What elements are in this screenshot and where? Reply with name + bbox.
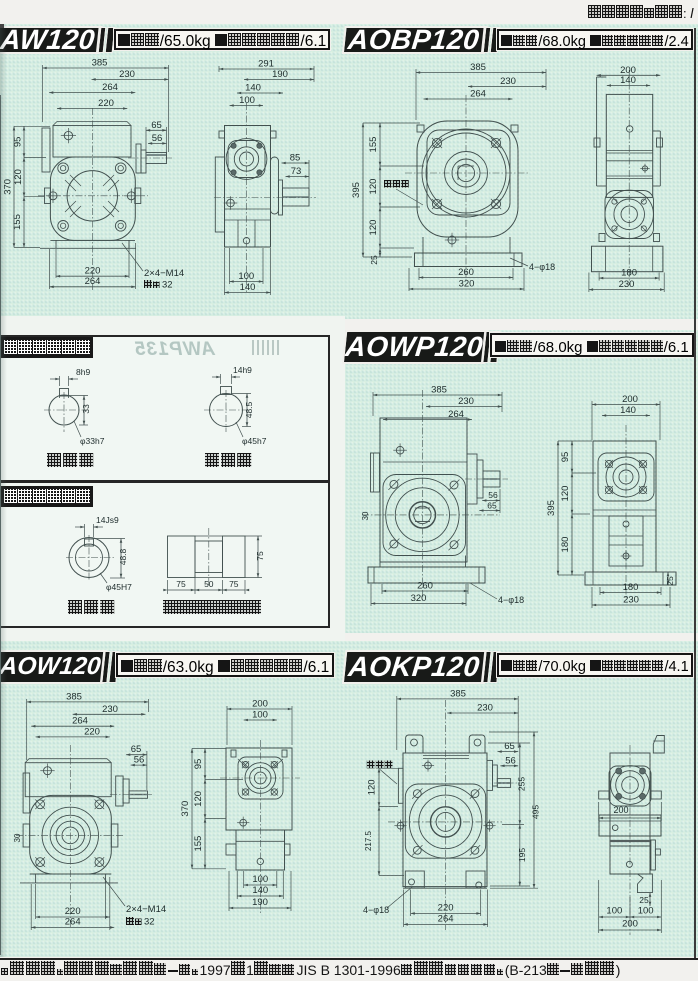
svg-text:85: 85: [290, 153, 301, 164]
svg-text:50: 50: [204, 579, 214, 589]
svg-text:120: 120: [560, 486, 571, 502]
svg-text:100: 100: [239, 95, 255, 106]
svg-text:395: 395: [351, 182, 362, 198]
svg-text:56: 56: [134, 755, 145, 766]
svg-text:140: 140: [252, 885, 268, 896]
svg-text:100: 100: [252, 710, 268, 721]
svg-text:14Js9: 14Js9: [96, 515, 119, 525]
svg-text:200: 200: [622, 919, 638, 930]
svg-text:385: 385: [92, 58, 108, 69]
svg-text:140: 140: [240, 282, 256, 293]
svg-text:155: 155: [368, 137, 379, 153]
svg-text:4−φ18: 4−φ18: [363, 905, 389, 915]
svg-text:230: 230: [500, 76, 516, 87]
svg-text:120: 120: [368, 179, 379, 195]
svg-text:100: 100: [606, 906, 622, 917]
svg-text:395: 395: [546, 500, 557, 516]
svg-text:264: 264: [448, 409, 464, 420]
svg-text:180: 180: [621, 268, 637, 279]
svg-text:230: 230: [623, 595, 639, 606]
svg-text:25: 25: [665, 576, 675, 586]
svg-text:120: 120: [367, 779, 378, 795]
svg-text:230: 230: [619, 279, 635, 290]
svg-text:260: 260: [458, 267, 474, 278]
svg-text:75: 75: [176, 579, 186, 589]
svg-text:φ45h7: φ45h7: [242, 436, 267, 446]
svg-text:217.5: 217.5: [364, 830, 373, 851]
svg-text:264: 264: [470, 89, 486, 100]
svg-text:14h9: 14h9: [233, 365, 252, 375]
svg-text:φ33h7: φ33h7: [80, 436, 105, 446]
svg-text:320: 320: [459, 279, 475, 290]
svg-text:65: 65: [151, 120, 162, 131]
svg-text:56: 56: [152, 133, 163, 144]
svg-text:4−φ18: 4−φ18: [529, 262, 555, 272]
svg-text:30: 30: [13, 833, 22, 842]
svg-text:73: 73: [291, 166, 302, 177]
svg-text:65: 65: [131, 744, 142, 755]
svg-text:140: 140: [245, 83, 261, 94]
svg-text:65: 65: [487, 501, 497, 511]
svg-text:32: 32: [162, 280, 173, 291]
svg-text:190: 190: [252, 897, 268, 908]
svg-text:220: 220: [438, 903, 454, 914]
svg-text:φ45H7: φ45H7: [106, 582, 132, 592]
svg-text:100: 100: [638, 906, 654, 917]
svg-text:230: 230: [458, 396, 474, 407]
svg-text:95: 95: [560, 452, 571, 463]
svg-text:140: 140: [620, 405, 636, 416]
svg-text:385: 385: [431, 385, 447, 396]
svg-text:200: 200: [252, 699, 268, 710]
svg-text:56: 56: [488, 490, 498, 500]
svg-text:495: 495: [531, 805, 541, 819]
svg-text:230: 230: [102, 704, 118, 715]
svg-text:56: 56: [505, 755, 516, 766]
svg-text:230: 230: [119, 69, 135, 80]
svg-text:100: 100: [252, 874, 268, 885]
svg-text:180: 180: [623, 582, 639, 593]
svg-text:385: 385: [450, 688, 466, 699]
svg-text:264: 264: [438, 914, 454, 925]
svg-text:32: 32: [144, 917, 155, 928]
svg-text:155: 155: [193, 836, 204, 852]
svg-text:4−φ18: 4−φ18: [498, 595, 524, 605]
svg-text:260: 260: [417, 581, 433, 592]
svg-text:230: 230: [477, 703, 493, 714]
svg-text:255: 255: [517, 777, 527, 791]
svg-text:75: 75: [255, 551, 265, 561]
svg-text:25: 25: [369, 255, 379, 265]
svg-text:95: 95: [193, 759, 204, 770]
svg-text:190: 190: [272, 69, 288, 80]
svg-text:385: 385: [66, 691, 82, 702]
svg-text:180: 180: [560, 537, 571, 553]
svg-text:140: 140: [620, 75, 636, 86]
svg-text:264: 264: [65, 917, 81, 928]
svg-text:48.8: 48.8: [118, 548, 128, 565]
svg-text:220: 220: [65, 906, 81, 917]
svg-text:220: 220: [84, 726, 100, 737]
svg-text:8h9: 8h9: [76, 367, 90, 377]
svg-text:25: 25: [639, 895, 649, 905]
svg-text:370: 370: [180, 801, 191, 817]
svg-text:75: 75: [229, 579, 239, 589]
svg-text:2×4−M14: 2×4−M14: [126, 904, 166, 915]
svg-text:264: 264: [85, 276, 101, 287]
svg-text:48.5: 48.5: [244, 401, 254, 418]
svg-text:100: 100: [238, 271, 254, 282]
svg-text:200: 200: [613, 805, 628, 815]
svg-text:200: 200: [622, 394, 638, 405]
svg-text:33: 33: [81, 404, 91, 414]
svg-text:120: 120: [193, 791, 204, 807]
svg-text:220: 220: [85, 266, 101, 277]
svg-text:120: 120: [13, 169, 24, 185]
svg-text:264: 264: [102, 82, 118, 93]
svg-text:220: 220: [98, 98, 114, 109]
svg-text:385: 385: [470, 62, 486, 73]
svg-text:120: 120: [368, 220, 379, 236]
svg-text:264: 264: [72, 716, 88, 727]
svg-text:195: 195: [517, 848, 527, 862]
svg-text:291: 291: [258, 59, 274, 70]
svg-text:320: 320: [411, 593, 427, 604]
svg-text:2×4−M14: 2×4−M14: [144, 268, 184, 279]
svg-text:30: 30: [361, 511, 370, 520]
